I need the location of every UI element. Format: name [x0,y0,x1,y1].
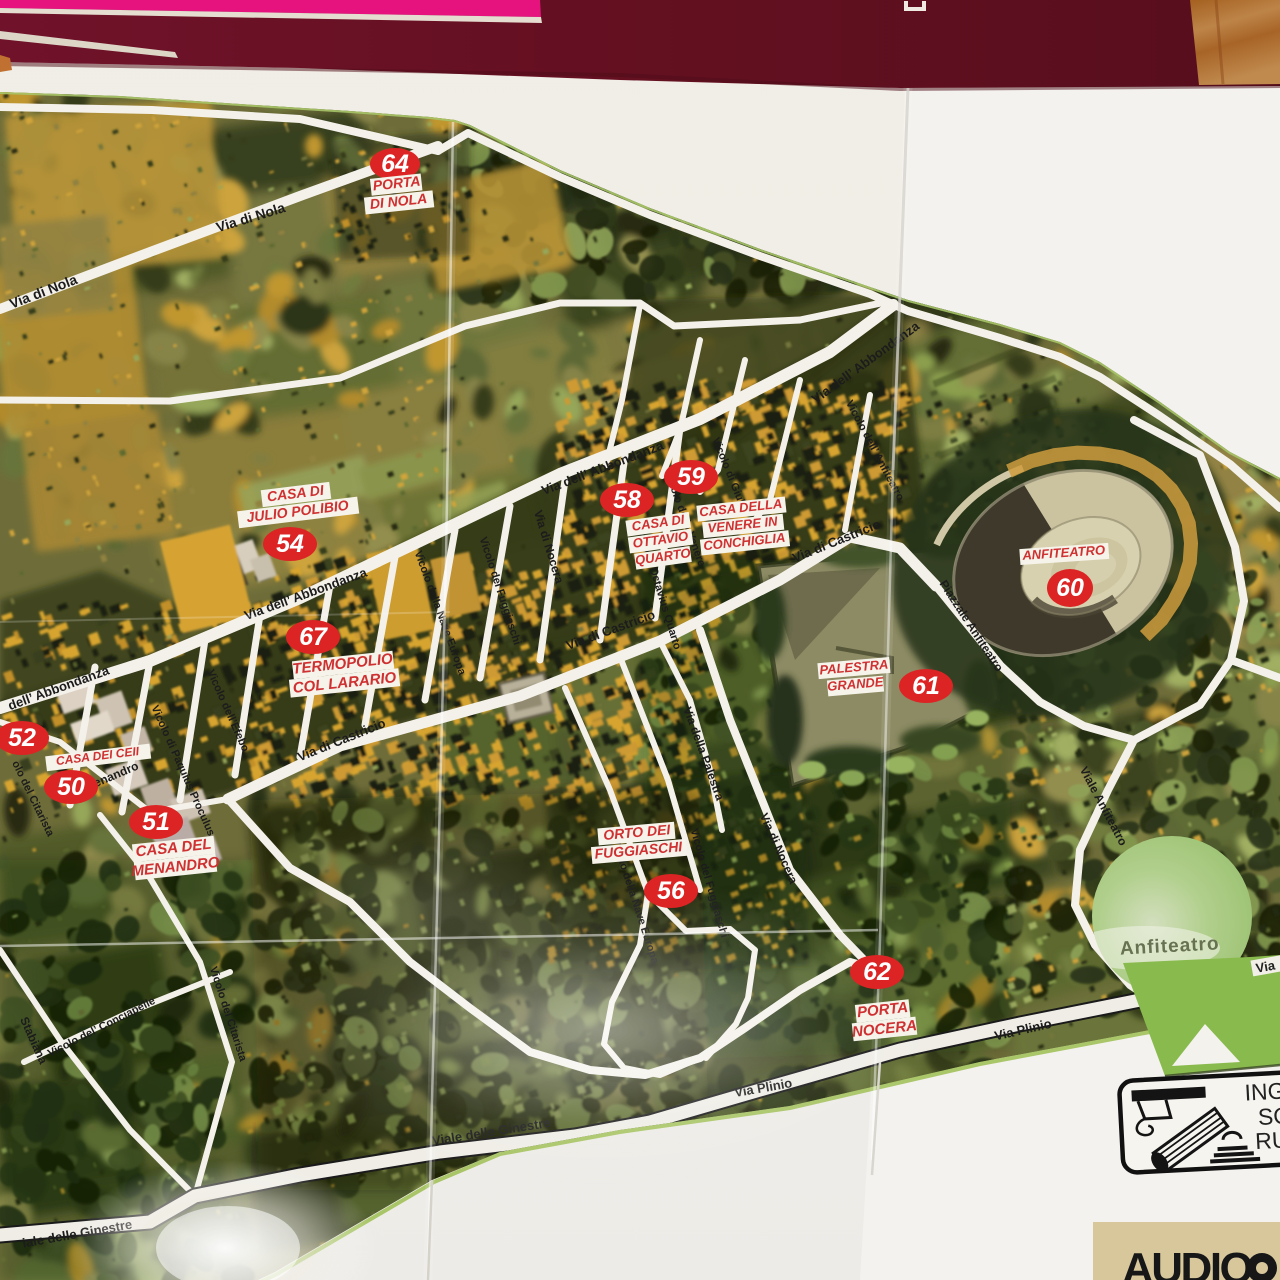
svg-text:AUDIO: AUDIO [1122,1244,1253,1280]
svg-text:50: 50 [57,773,85,801]
svg-text:62: 62 [863,958,891,986]
svg-text:56: 56 [657,877,686,905]
svg-text:61: 61 [912,672,940,700]
svg-text:60: 60 [1056,574,1084,602]
svg-text:INGRE: INGRE [1244,1076,1280,1106]
svg-text:51: 51 [142,808,170,836]
svg-text:67: 67 [299,623,328,651]
svg-text:SC: SC [1257,1102,1280,1130]
svg-text:54: 54 [276,530,304,558]
svg-text:58: 58 [613,486,641,514]
svg-text:59: 59 [677,463,705,491]
svg-text:RU: RU [1255,1126,1280,1154]
svg-text:52: 52 [8,724,36,752]
